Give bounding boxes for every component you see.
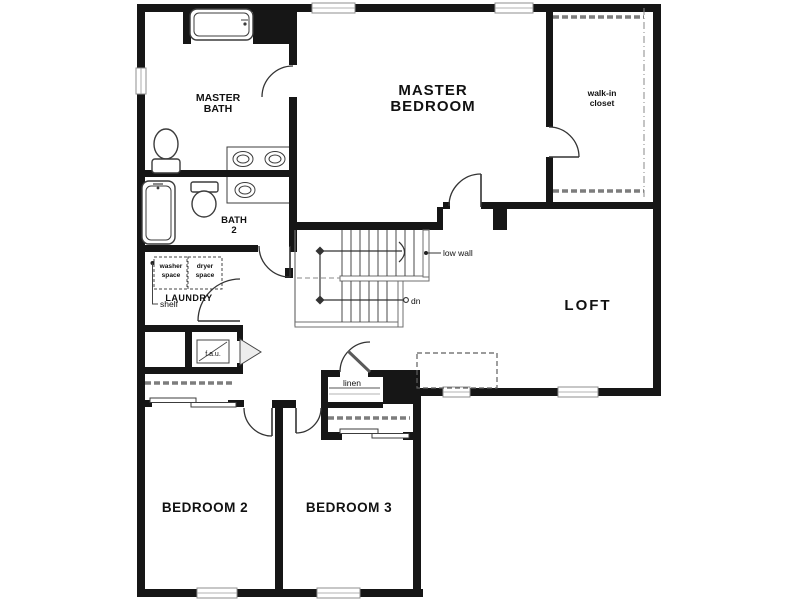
fau-door-wedge xyxy=(240,339,261,365)
floor-plan-drawing: MASTER BATH MASTER BEDROOM walk-in close… xyxy=(0,0,800,600)
wall-linen-bottom xyxy=(321,402,383,408)
label-dn: dn xyxy=(411,296,421,306)
linen-shelves xyxy=(329,388,380,394)
wall-stair-top xyxy=(293,222,437,230)
wall-bedroom-divider xyxy=(275,408,283,597)
wall-divider-top-post xyxy=(272,400,296,408)
floor-plan-page: MASTER BATH MASTER BEDROOM walk-in close… xyxy=(0,0,800,600)
wall-linen-mass xyxy=(383,370,420,404)
wall-bedroom3-right xyxy=(413,393,421,597)
window-bedroom3 xyxy=(317,588,360,598)
room-label-master-bedroom-1: MASTER xyxy=(398,82,467,99)
wall-loft-notch xyxy=(493,209,507,230)
toilet-icon xyxy=(152,129,180,173)
wall-post xyxy=(437,207,443,230)
room-label-master-bath-2: BATH xyxy=(204,103,232,115)
stair-rail-right xyxy=(398,281,403,327)
label-washer-2: space xyxy=(162,272,181,279)
bathtub-icon xyxy=(190,9,253,40)
room-label-loft: LOFT xyxy=(564,297,611,314)
toilet2-icon xyxy=(191,182,218,217)
room-label-walkin-2: closet xyxy=(590,98,615,108)
stair-direction-arrows xyxy=(316,242,409,305)
window-bedroom2 xyxy=(197,588,237,598)
door-arc-walkin-closet xyxy=(549,127,579,157)
bedroom3-closet-sliding-door xyxy=(340,429,409,438)
stair-rail-middle xyxy=(340,276,429,281)
label-washer-1: washer xyxy=(159,263,183,270)
door-arc-master-bath xyxy=(262,66,293,97)
label-shelf: shelf xyxy=(160,299,179,309)
door-arc-master-bedroom xyxy=(449,174,481,207)
door-arc-linen xyxy=(340,342,370,372)
wall-closet3-post-left xyxy=(321,432,342,440)
wall-mbed-bottom xyxy=(481,202,661,209)
wall-chase xyxy=(253,4,297,44)
wall-stub xyxy=(290,245,297,252)
wall-bath2-bottom xyxy=(137,245,258,252)
wall-laundry-bottom xyxy=(137,325,243,332)
low-wall-leader xyxy=(424,251,441,255)
label-fau: f.a.u. xyxy=(205,351,221,358)
loft-optional-area xyxy=(417,353,497,388)
window-top-2 xyxy=(495,3,533,13)
wall-closet-left-lower xyxy=(546,157,553,209)
stairs xyxy=(295,230,441,327)
wall-exterior-right xyxy=(653,4,661,396)
arrow-diamond-lower xyxy=(316,296,325,305)
door-arc-bedroom3 xyxy=(296,408,321,433)
stair-rail-bottom xyxy=(295,322,402,327)
door-arc-bedroom2 xyxy=(244,408,272,436)
wall-closet-left-upper xyxy=(546,4,553,127)
window-loft-2 xyxy=(558,387,598,397)
stair-treads-lower xyxy=(342,281,387,322)
arrow-diamond-upper xyxy=(316,247,325,256)
wall-masterbath-right-upper xyxy=(289,44,297,65)
window-left-wall xyxy=(136,68,146,94)
room-label-master-bedroom-2: BEDROOM xyxy=(390,98,475,115)
wall-bedroom2-closet-top xyxy=(137,367,243,374)
label-dryer-2: space xyxy=(196,272,215,279)
room-label-bedroom2: BEDROOM 2 xyxy=(162,500,248,515)
window-top-1 xyxy=(312,3,355,13)
vanity2-icon xyxy=(227,177,289,203)
label-dryer-1: dryer xyxy=(197,263,214,270)
bedroom2-closet-sliding-door xyxy=(150,398,236,407)
room-label-bedroom3: BEDROOM 3 xyxy=(306,500,392,515)
stair-treads-upper xyxy=(342,230,414,276)
room-label-walkin-1: walk-in xyxy=(587,88,617,98)
room-label-bath2-2: 2 xyxy=(231,225,236,236)
label-low-wall: low wall xyxy=(443,248,473,258)
shelf-bracket xyxy=(151,261,159,304)
arrow-end-marker xyxy=(404,298,409,303)
label-linen: linen xyxy=(343,378,361,388)
double-vanity-icon xyxy=(227,147,289,170)
bathtub2-icon xyxy=(142,181,175,244)
